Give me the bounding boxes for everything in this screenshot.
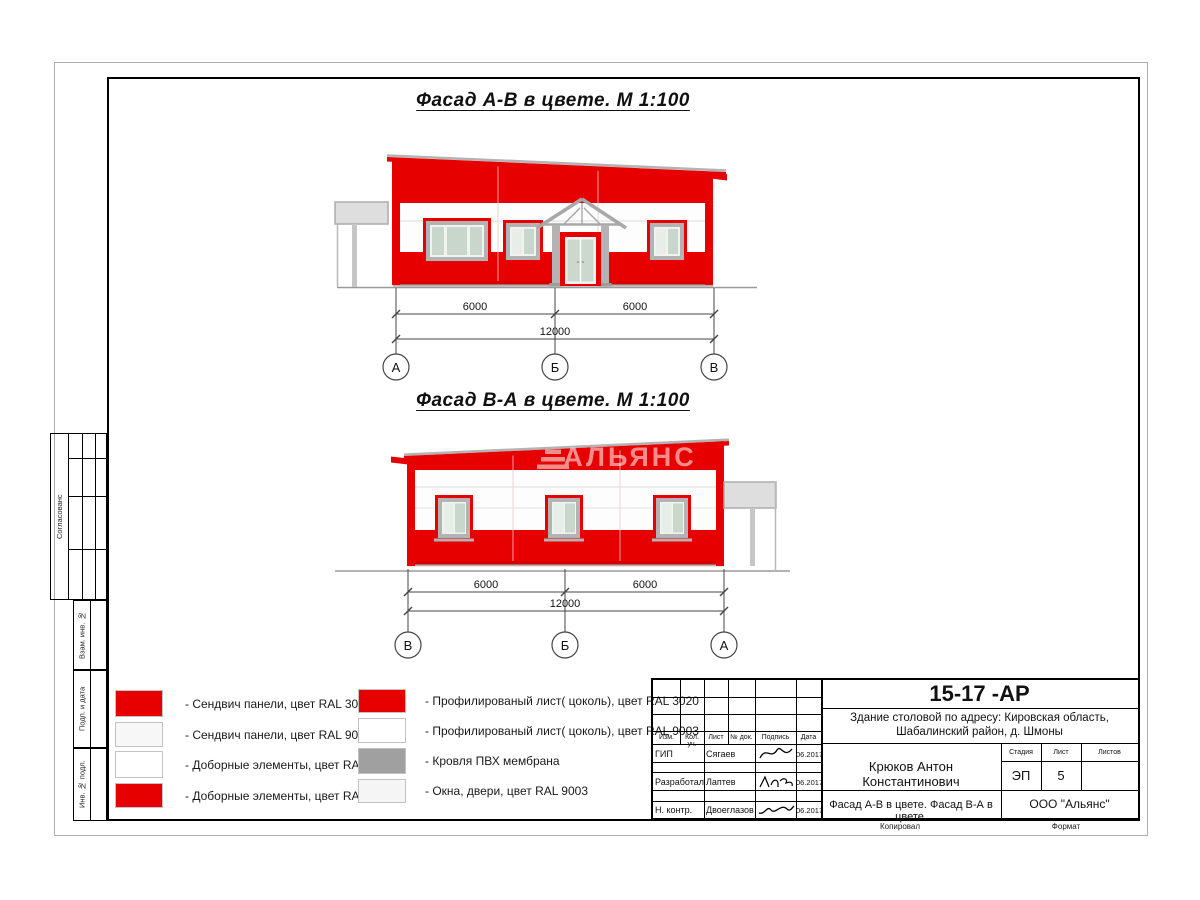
stage-value: ЭП xyxy=(1001,768,1041,783)
legend-label: - Сендвич панели, цвет RAL 9003 xyxy=(185,728,372,742)
facade-va-window-1 xyxy=(434,495,474,542)
facade-av-window-1 xyxy=(423,218,491,264)
legend-item: - Сендвич панели, цвет RAL 9003 xyxy=(115,722,372,747)
margin-cell-podp: Подп. и дата xyxy=(73,670,107,748)
sheet-name: Фасад А-В в цвете. Фасад В-А в цвете. xyxy=(821,799,1001,823)
col-list: Лист xyxy=(704,734,728,741)
signer-name: Лаптев xyxy=(706,777,736,787)
margin-cell-inv: Инв. № подл. xyxy=(73,748,107,821)
approved-label: Согласованс xyxy=(51,434,68,599)
axis-av-mid: Б xyxy=(551,360,560,375)
facade-av-awning xyxy=(335,202,388,287)
legend-label: - Сендвич панели, цвет RAL 3020 xyxy=(185,697,372,711)
signer-role: ГИП xyxy=(655,749,673,759)
margin-cell-vzam: Взам. инв. № xyxy=(73,600,107,670)
dim-av-right: 6000 xyxy=(623,301,647,313)
facade-av-dimensions xyxy=(392,288,718,354)
signature xyxy=(757,773,795,790)
dim-av-left: 6000 xyxy=(463,301,487,313)
dim-va-total: 12000 xyxy=(550,598,581,610)
dim-va-left: 6000 xyxy=(474,579,498,591)
facade-av-window-3 xyxy=(647,220,687,263)
axis-va-left: В xyxy=(404,638,413,653)
col-date: Дата xyxy=(796,734,821,741)
watermark-text: АЛЬЯНС xyxy=(563,442,697,472)
col-sign: Подпись xyxy=(755,734,796,741)
format-label: Формат xyxy=(1006,822,1126,831)
legend-swatch xyxy=(358,689,406,713)
approval-table: Согласованс xyxy=(50,433,107,600)
axis-av-left: А xyxy=(392,360,401,375)
sheet-number: 5 xyxy=(1041,768,1081,783)
axis-va-mid: Б xyxy=(561,638,570,653)
stage-label: Стадия xyxy=(1001,749,1041,756)
col-izm: Изм. xyxy=(653,734,680,741)
copied-label: Копировал xyxy=(840,822,960,831)
legend-swatch xyxy=(358,718,406,743)
inv-label: Инв. № подл. xyxy=(74,749,90,820)
axis-av-right: В xyxy=(710,360,719,375)
axis-va-right: А xyxy=(720,638,729,653)
legend-item: - Кровля ПВХ мембрана xyxy=(358,748,560,774)
doc-number: 15-17 -АР xyxy=(821,681,1138,707)
architect-name: Крюков Антон Константинович xyxy=(821,759,1001,789)
dim-va-right: 6000 xyxy=(633,579,657,591)
legend-item: - Доборные элементы, цвет RAL 9003 xyxy=(115,751,396,778)
signature xyxy=(757,801,795,818)
dim-av-total: 12000 xyxy=(540,326,571,338)
facade-va-awning xyxy=(724,482,776,571)
project-name-line1: Здание столовой по адресу: Кировская обл… xyxy=(821,712,1138,724)
legend-swatch xyxy=(115,783,163,808)
facade-av-title: Фасад А-В в цвете. М 1:100 xyxy=(333,90,773,112)
facade-av-drawing: 6000 6000 12000 А Б В xyxy=(330,145,770,390)
legend-item: - Доборные элементы, цвет RAL 3020 xyxy=(115,783,396,808)
legend-swatch xyxy=(115,751,163,778)
signer-name: Двоеглазов xyxy=(706,805,754,815)
legend-item: - Сендвич панели, цвет RAL 3020 xyxy=(115,690,372,717)
sheets-label: Листов xyxy=(1081,749,1138,756)
legend-label: - Окна, двери, цвет RAL 9003 xyxy=(425,784,588,798)
legend-item: - Профилированый лист( цоколь), цвет RAL… xyxy=(358,689,699,713)
signer-role: Н. контр. xyxy=(655,805,692,815)
facade-va-drawing: АЛЬЯНС 6000 6000 12000 В Б А xyxy=(330,420,800,670)
legend-swatch xyxy=(115,722,163,747)
col-doc: № док. xyxy=(728,734,755,741)
signer-date: 06.2017 xyxy=(796,806,821,815)
drawing-sheet: Согласованс Взам. инв. № Подп. и дата Ин… xyxy=(0,0,1200,900)
col-kol: Кол. уч. xyxy=(680,734,704,748)
sheet-label: Лист xyxy=(1041,749,1081,756)
legend-item: - Профилированый лист( цоколь), цвет RAL… xyxy=(358,718,699,743)
signer-date: 06.2017 xyxy=(796,750,821,759)
facade-va-window-3 xyxy=(652,495,692,542)
legend-swatch xyxy=(358,779,406,803)
signature xyxy=(757,745,795,762)
facade-va-title: Фасад В-А в цвете. М 1:100 xyxy=(333,390,773,412)
project-name-line2: Шабалинский район, д. Шмоны xyxy=(821,726,1138,738)
signer-role: Разработал xyxy=(655,777,704,787)
legend-label: - Кровля ПВХ мембрана xyxy=(425,754,560,768)
company-name: ООО "Альянс" xyxy=(1001,797,1138,811)
signer-name: Сягаев xyxy=(706,749,735,759)
legend-swatch xyxy=(115,690,163,717)
facade-va-window-2 xyxy=(544,495,584,542)
podp-label: Подп. и дата xyxy=(74,671,90,747)
vzam-label: Взам. инв. № xyxy=(74,601,90,669)
legend-item: - Окна, двери, цвет RAL 9003 xyxy=(358,779,588,803)
signer-date: 06.2017 xyxy=(796,778,821,787)
title-block: Изм. Кол. уч. Лист № док. Подпись Дата Г… xyxy=(651,678,1140,820)
legend-swatch xyxy=(358,748,406,774)
